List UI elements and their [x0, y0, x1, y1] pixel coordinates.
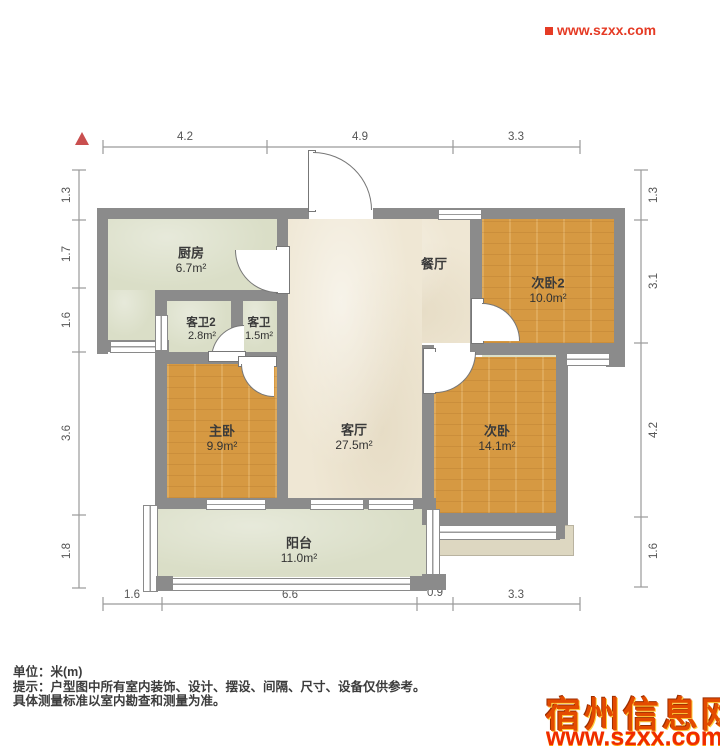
dim-left-2: 1.7 [61, 246, 73, 262]
dim-left-3: 1.6 [61, 312, 73, 328]
label-bedroom2b: 次卧2 [531, 273, 564, 292]
area-living: 27.5m² [335, 438, 372, 452]
window-bath2-left [155, 315, 168, 351]
dim-bottom-4: 3.3 [508, 589, 524, 601]
area-bath2: 2.8m² [188, 330, 216, 342]
area-bedroom2b: 10.0m² [529, 291, 566, 305]
label-kitchen: 厨房 [178, 243, 204, 262]
dim-left-4: 3.6 [61, 425, 73, 441]
dim-left-5: 1.8 [61, 543, 73, 559]
area-balcony: 11.0m² [281, 551, 317, 565]
label-dining: 餐厅 [421, 254, 447, 273]
watermark-url-bottom: www.szxx.com.cn [546, 723, 720, 752]
dim-left-1: 1.3 [61, 187, 73, 203]
label-bedroom2: 次卧 [484, 421, 510, 440]
wall [97, 208, 108, 354]
disclaimer-line1: 提示：户型图中所有室内装饰、设计、摆设、间隔、尺寸、设备仅供参考。 [13, 680, 426, 695]
wall [422, 513, 568, 525]
room-living [288, 219, 422, 498]
unit-note: 单位：米(m) [13, 665, 426, 680]
label-bath1: 客卫 [248, 314, 271, 330]
label-master: 主卧 [209, 421, 235, 440]
window-top [438, 209, 482, 220]
dim-right-1: 1.3 [648, 187, 660, 203]
dim-top-1: 4.2 [177, 131, 193, 143]
label-bath2: 客卫2 [186, 314, 215, 330]
disclaimer-line2: 具体测量标准以室内勘查和测量为准。 [13, 694, 426, 709]
bay-window [434, 525, 560, 540]
window-living-south-1 [310, 499, 364, 510]
wall [614, 208, 625, 358]
area-bedroom2: 14.1m² [478, 439, 515, 453]
floorplan-canvas: 4.2 4.9 3.3 1.6 6.6 0.9 3.3 1.3 1.7 1.6 … [0, 0, 720, 754]
footer-notes: 单位：米(m) 提示：户型图中所有室内装饰、设计、摆设、间隔、尺寸、设备仅供参考… [13, 665, 426, 709]
area-bath1: 1.5m² [245, 330, 273, 342]
balcony-window-right [426, 509, 440, 576]
wall [277, 352, 288, 509]
dim-right-3: 4.2 [648, 422, 660, 438]
wall [556, 345, 568, 525]
room-kitchen-ext [108, 290, 155, 340]
area-kitchen: 6.7m² [176, 261, 207, 275]
label-living: 客厅 [341, 420, 367, 439]
window-master-south [206, 499, 266, 510]
watermark-square-icon [545, 27, 553, 35]
watermark-url-top: www.szxx.com [557, 22, 656, 38]
dim-right-2: 3.1 [648, 273, 660, 289]
dim-bottom-1: 1.6 [124, 589, 140, 601]
window-living-south-2 [368, 499, 414, 510]
area-master: 9.9m² [207, 439, 238, 453]
balcony-window-bottom [171, 578, 414, 591]
window-right-mid [566, 353, 610, 366]
dim-top-2: 4.9 [352, 131, 368, 143]
wall [556, 525, 565, 539]
wall [422, 574, 446, 590]
dim-right-4: 1.6 [648, 543, 660, 559]
kitchen-door-leaf [276, 246, 290, 294]
label-balcony: 阳台 [286, 533, 312, 552]
dim-top-3: 3.3 [508, 131, 524, 143]
wall [156, 576, 173, 591]
window-kitchen-bottom [110, 341, 156, 353]
